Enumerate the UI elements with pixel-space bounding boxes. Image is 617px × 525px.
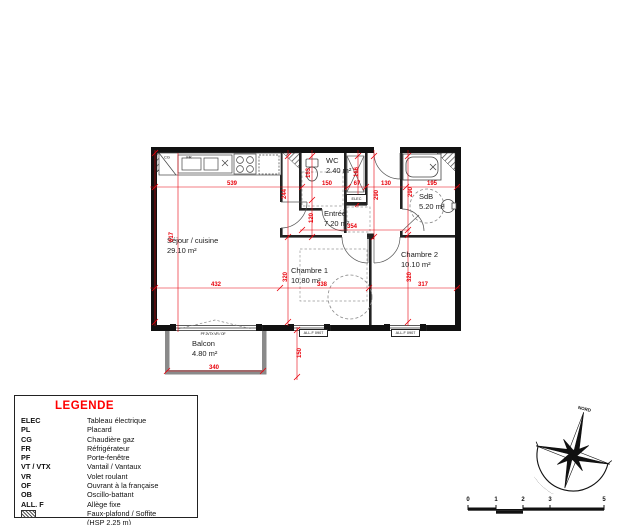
dim-label: 150 (297, 348, 303, 358)
stove-icon (234, 154, 256, 174)
north-label: NORD (577, 405, 592, 413)
dim-label: 539 (227, 181, 237, 187)
legend-item: ELEC Tableau électrique (21, 416, 191, 425)
dim-label: 432 (211, 282, 221, 288)
kitchen-counter (159, 153, 281, 175)
room-label-sdb: SdB5.20 m² (419, 192, 444, 211)
legend-item: OB Oscillo-battant (21, 490, 191, 499)
dim-label: 67 (354, 181, 361, 187)
scale-tick-label: 5 (602, 497, 605, 503)
legend-item-false-ceiling: Faux-plafond / Soffite (HSP 2,25 m) (21, 509, 191, 525)
balcony-door-tag: PF 2VTX VR / OF (201, 332, 226, 336)
dim-label: 163 (306, 168, 312, 178)
dim-label: 195 (427, 181, 437, 187)
dim-label: 120 (309, 213, 315, 223)
hatch-swatch (21, 510, 36, 518)
floor-plan-document: NORD ···················· Séjour / cuisi… (0, 0, 617, 525)
front-door-opening (374, 146, 400, 154)
dim-label: 320 (283, 272, 289, 282)
legend-item: VR Volet roulant (21, 472, 191, 481)
window-sill-tag: ALL.F 0907 (299, 329, 328, 337)
dim-label: 617 (169, 232, 175, 242)
legend-item: FR Réfrigérateur (21, 444, 191, 453)
kitchen-fridge-tag: FR (186, 155, 191, 160)
legend-box: LEGENDE ELEC Tableau électrique PL Placa… (14, 395, 198, 518)
legend-item: PF Porte-fenêtre (21, 453, 191, 462)
fridge-icon (259, 155, 279, 174)
room-label-wc: WC2.40 m² (326, 156, 351, 175)
dim-label: 290 (374, 190, 380, 200)
room-label-entree: Entrée7.20 m² (324, 209, 349, 228)
scale-tick-label: 2 (521, 497, 524, 503)
dim-label: 320 (407, 272, 413, 282)
dim-label: 317 (418, 282, 428, 288)
dim-label: 150 (322, 181, 332, 187)
dim-label: 166 (354, 167, 360, 177)
elec-panel-tag: ELEC (346, 194, 367, 203)
scale-tick-label: 1 (494, 497, 497, 503)
room-label-balcon: Balcon4.80 m² (192, 339, 217, 358)
dim-label: 290 (408, 187, 414, 197)
kitchen-boiler-tag: CG (164, 155, 170, 160)
legend-item: OF Ouvrant à la française (21, 481, 191, 490)
window-sill-tag: ALL.F 0907 (391, 329, 420, 337)
bathtub-icon (403, 154, 441, 180)
compass-arc-marks: ···················· (533, 475, 555, 496)
scale-tick-label: 0 (466, 497, 469, 503)
legend-item: CG Chaudière gaz (21, 435, 191, 444)
dim-label: 130 (381, 181, 391, 187)
legend-item: VT / VTX Vantail / Vantaux (21, 462, 191, 471)
scale-tick-label: 3 (548, 497, 551, 503)
dim-label: 340 (209, 365, 219, 371)
dim-label: 244 (282, 189, 288, 199)
scale-bar (468, 505, 605, 514)
legend-item: PL Placard (21, 425, 191, 434)
dim-label: 338 (317, 282, 327, 288)
room-label-chambre2: Chambre 210.10 m² (401, 250, 438, 269)
legend-title: LEGENDE (55, 400, 191, 412)
legend-item: ALL. F Allège fixe (21, 500, 191, 509)
dim-label: 354 (347, 224, 357, 230)
